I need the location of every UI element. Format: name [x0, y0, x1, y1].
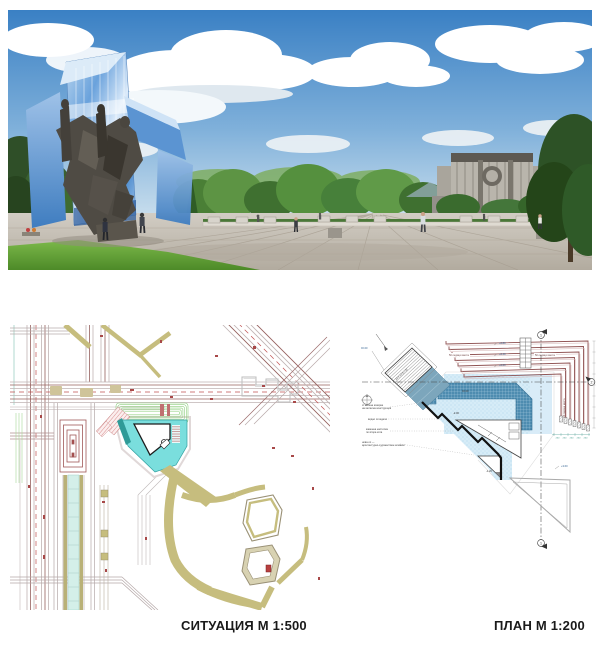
- svg-text:+2.80: +2.80: [499, 341, 506, 345]
- seat-label-left: 50 седящи места: [449, 354, 469, 357]
- existing-stair-symbol: [520, 338, 531, 368]
- red-pavilion: [266, 565, 271, 572]
- floor-plan-drawing: 14 x 17.5 / 30: [358, 328, 600, 575]
- hexagon-pond-1: [243, 495, 282, 541]
- svg-text:по втора кота: по втора кота: [366, 431, 383, 434]
- red-mark: [167, 404, 170, 416]
- hexagon-pond-2: [242, 545, 280, 585]
- photo-monument-plaza: [8, 10, 592, 270]
- svg-text:+3.60: +3.60: [561, 464, 568, 468]
- boulevard-fountain-strip: [63, 475, 84, 610]
- svg-text:2: 2: [591, 380, 593, 384]
- red-hatch-strip: [172, 425, 180, 443]
- svg-text:±0.00: ±0.00: [361, 346, 368, 350]
- svg-text:водно огледало: водно огледало: [368, 418, 388, 421]
- caption-floor-plan: ПЛАН М 1:200: [494, 618, 585, 633]
- svg-text:1: 1: [540, 541, 542, 545]
- svg-text:±0.00: ±0.00: [462, 389, 469, 393]
- svg-text:+2.40: +2.40: [499, 352, 506, 356]
- red-mark: [160, 404, 164, 416]
- svg-text:+2.00: +2.00: [499, 363, 506, 367]
- svg-text:на метална конструкция: на метална конструкция: [362, 407, 392, 410]
- site-plan-drawing: [10, 325, 330, 610]
- presentation-board: 14 x 17.5 / 30: [0, 0, 600, 649]
- svg-text:1: 1: [540, 333, 542, 337]
- seat-label-right: 50 седящи места: [535, 354, 555, 357]
- caption-site-plan: СИТУАЦИЯ М 1:500: [181, 618, 307, 633]
- svg-text:-1.20: -1.20: [486, 469, 492, 473]
- svg-text:архитектурно-художествен елеме: архитектурно-художествен елемент: [362, 444, 406, 447]
- seat-label-side: 50 седящи места: [563, 398, 566, 418]
- svg-text:-2.00: -2.00: [453, 411, 459, 415]
